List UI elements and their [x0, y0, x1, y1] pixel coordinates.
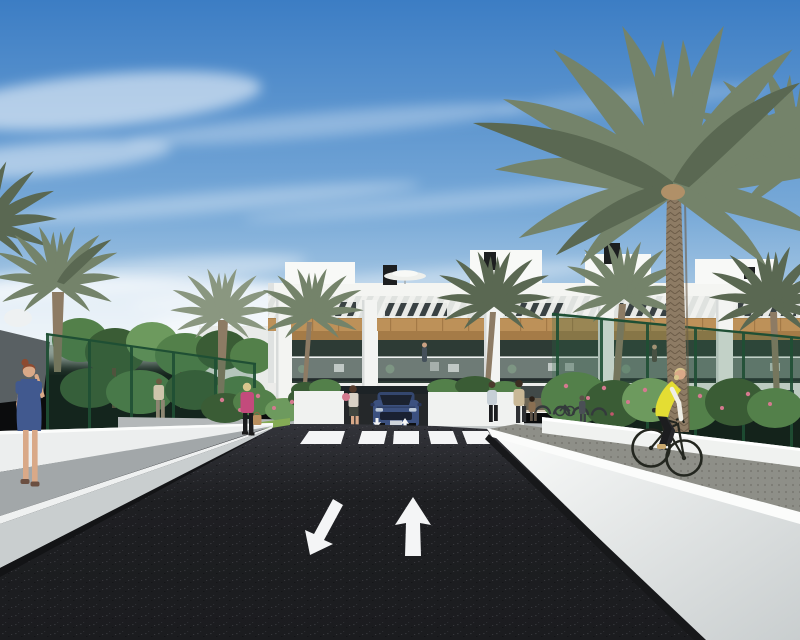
handbag [253, 415, 262, 425]
car-windshield [380, 395, 412, 405]
blue-dress [17, 379, 42, 431]
scene-render: Architectural render: modern white apart… [0, 0, 800, 640]
distant-dome [4, 309, 32, 327]
balcony-unit [378, 331, 484, 383]
balcony-unit [292, 331, 362, 383]
crosswalk [300, 431, 496, 444]
render-viewport: Architectural render: modern white apart… [0, 0, 800, 640]
